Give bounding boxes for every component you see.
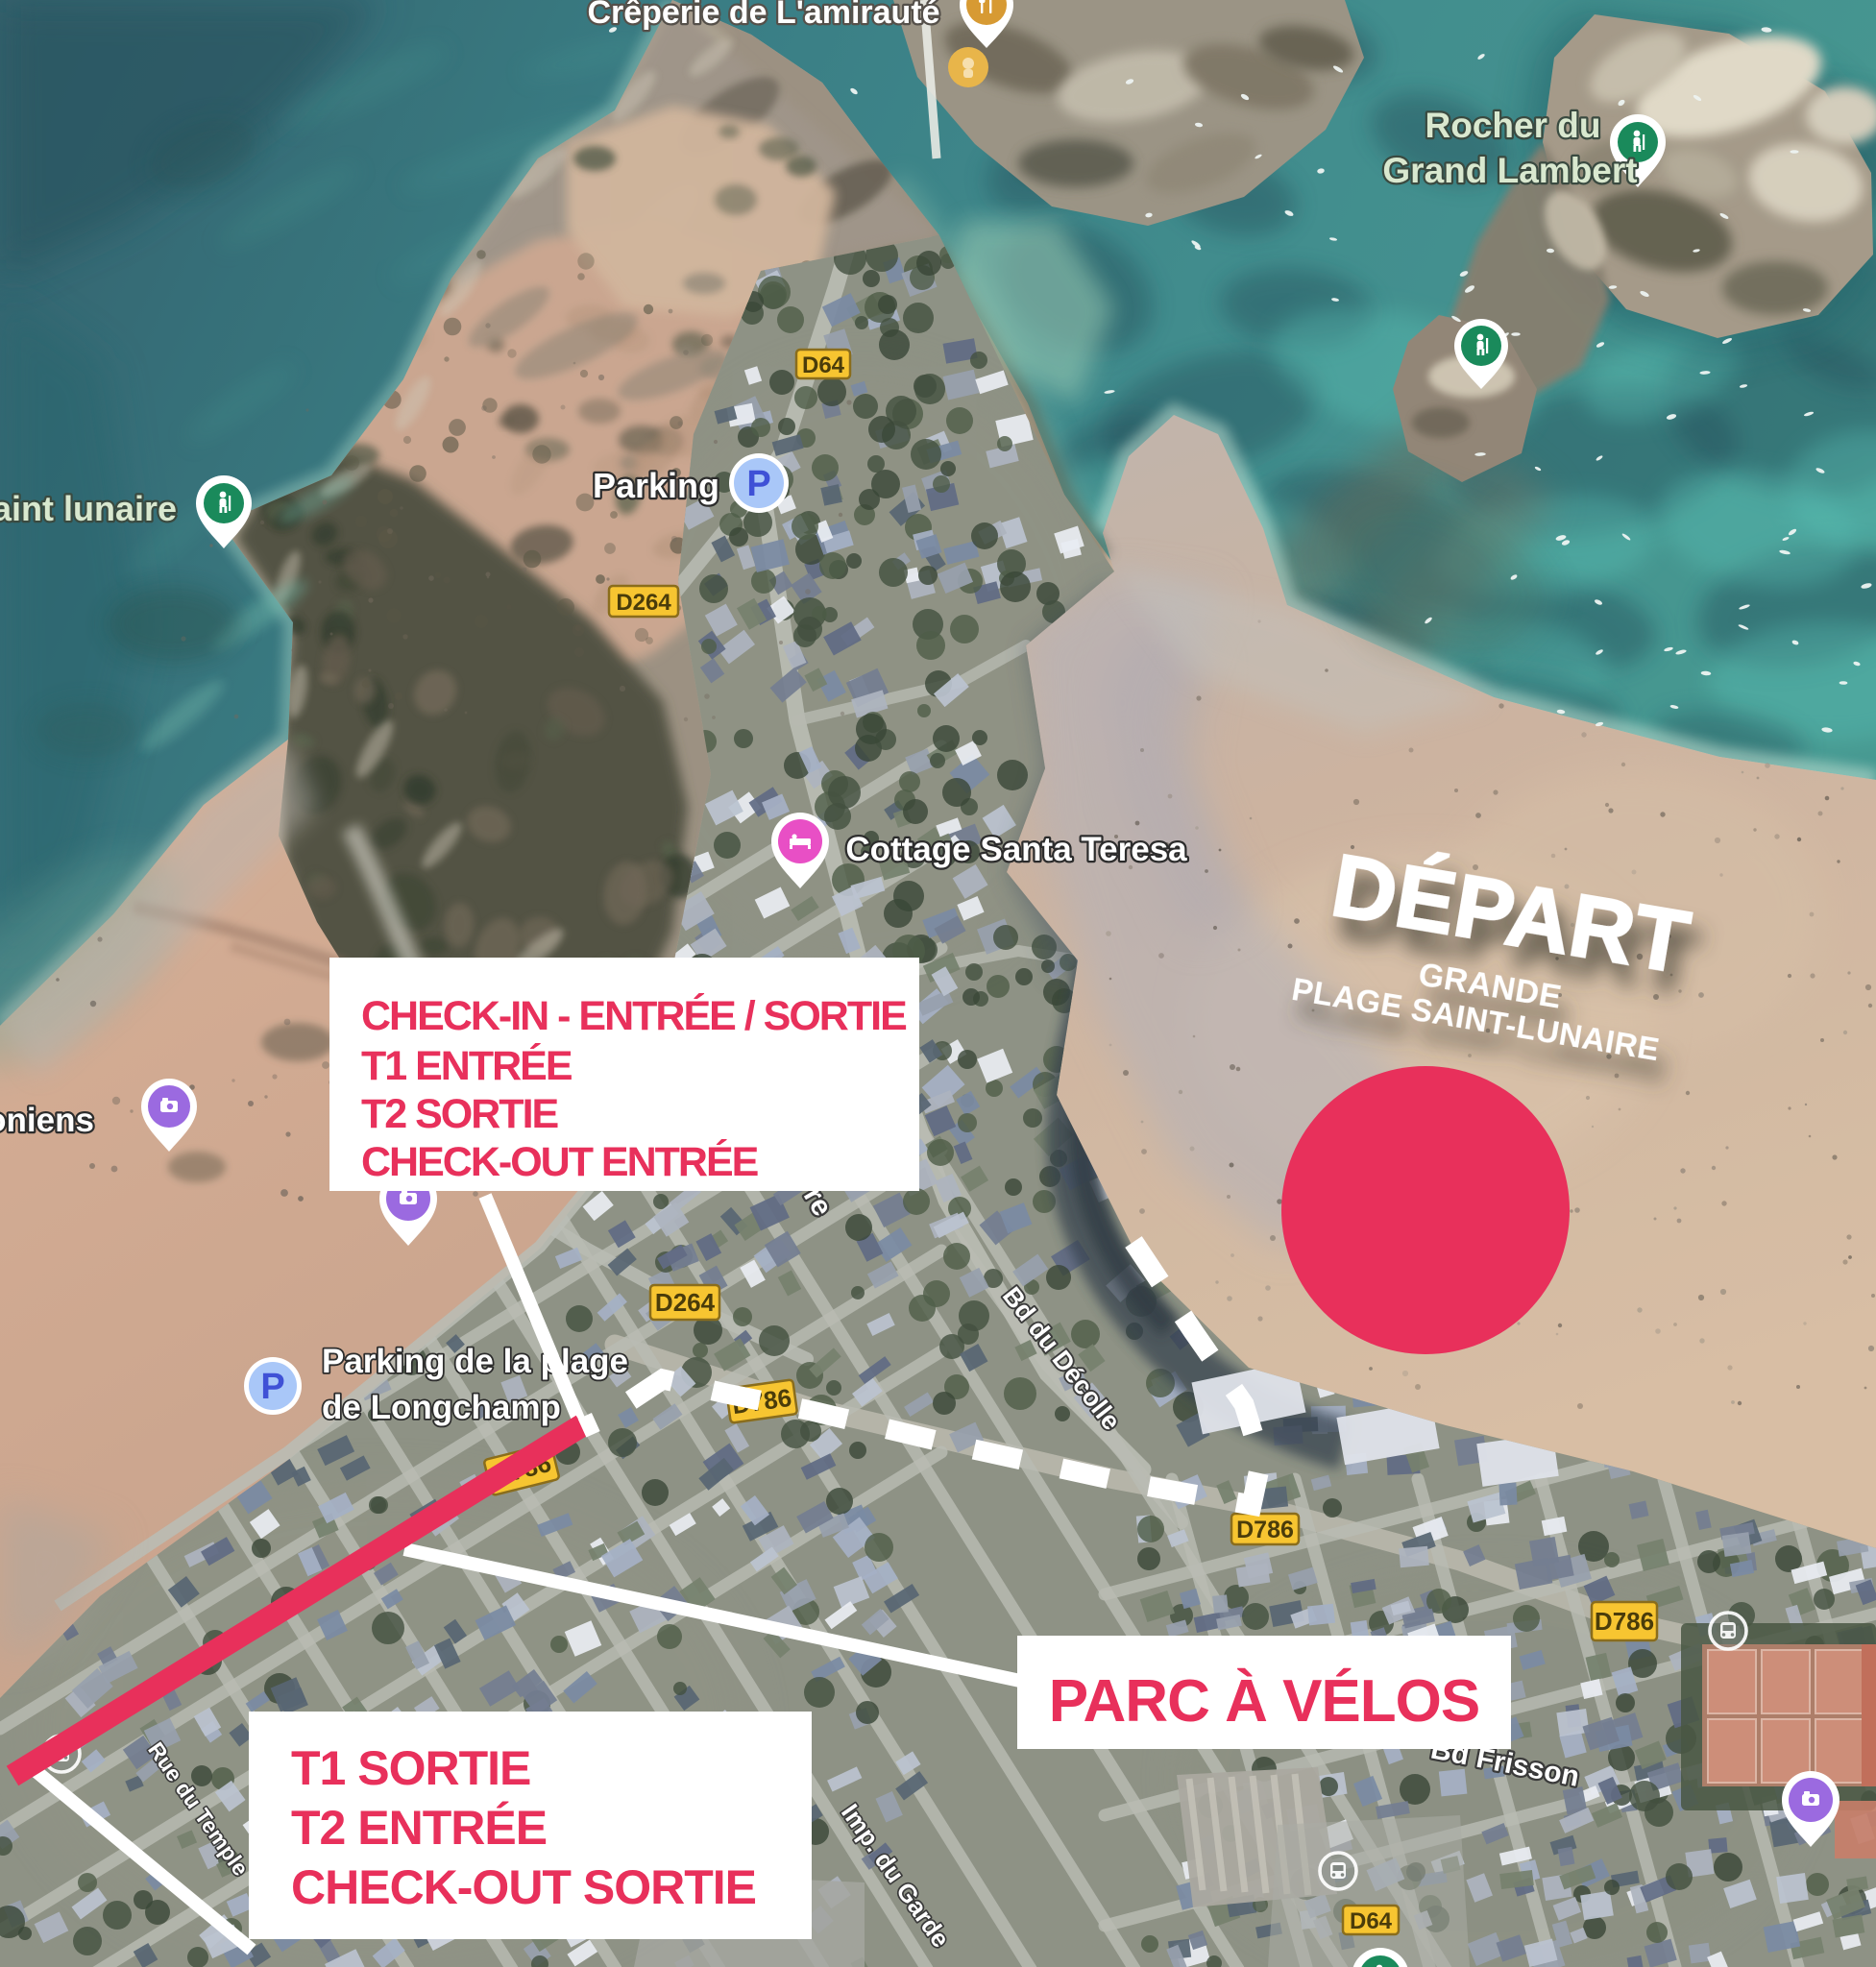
svg-text:Rocher du: Rocher du [1425,106,1601,145]
svg-text:D64: D64 [1350,1908,1393,1934]
svg-text:Cottage Santa Teresa: Cottage Santa Teresa [845,831,1187,868]
svg-text:Grand Lambert: Grand Lambert [1382,151,1637,190]
svg-text:Parking: Parking [593,466,719,505]
svg-text:T1 ENTRÉE: T1 ENTRÉE [361,1043,572,1089]
svg-text:D64: D64 [802,352,845,378]
svg-text:étoniens: étoniens [0,1102,94,1139]
svg-text:Crêperie de L'amirauté: Crêperie de L'amirauté [587,0,939,31]
svg-text:CHECK-IN - ENTRÉE / SORTIE: CHECK-IN - ENTRÉE / SORTIE [361,993,906,1039]
svg-text:D264: D264 [655,1288,716,1317]
svg-text:T2 ENTRÉE: T2 ENTRÉE [291,1801,547,1855]
svg-text:CHECK-OUT ENTRÉE: CHECK-OUT ENTRÉE [361,1139,758,1185]
svg-text:Parking de la plage: Parking de la plage [322,1343,628,1380]
svg-text:de Longchamp: de Longchamp [322,1389,561,1426]
svg-text:T1 SORTIE: T1 SORTIE [291,1741,530,1795]
svg-text:PARC À VÉLOS: PARC À VÉLOS [1049,1668,1479,1735]
svg-text:T2 SORTIE: T2 SORTIE [361,1091,558,1137]
svg-text:P: P [260,1367,284,1407]
svg-text:D786: D786 [1595,1607,1654,1636]
svg-text:aint lunaire: aint lunaire [0,489,177,528]
svg-text:P: P [746,464,770,504]
svg-text:D786: D786 [1236,1517,1294,1543]
svg-text:D264: D264 [616,590,671,616]
svg-text:CHECK-OUT SORTIE: CHECK-OUT SORTIE [291,1860,756,1914]
